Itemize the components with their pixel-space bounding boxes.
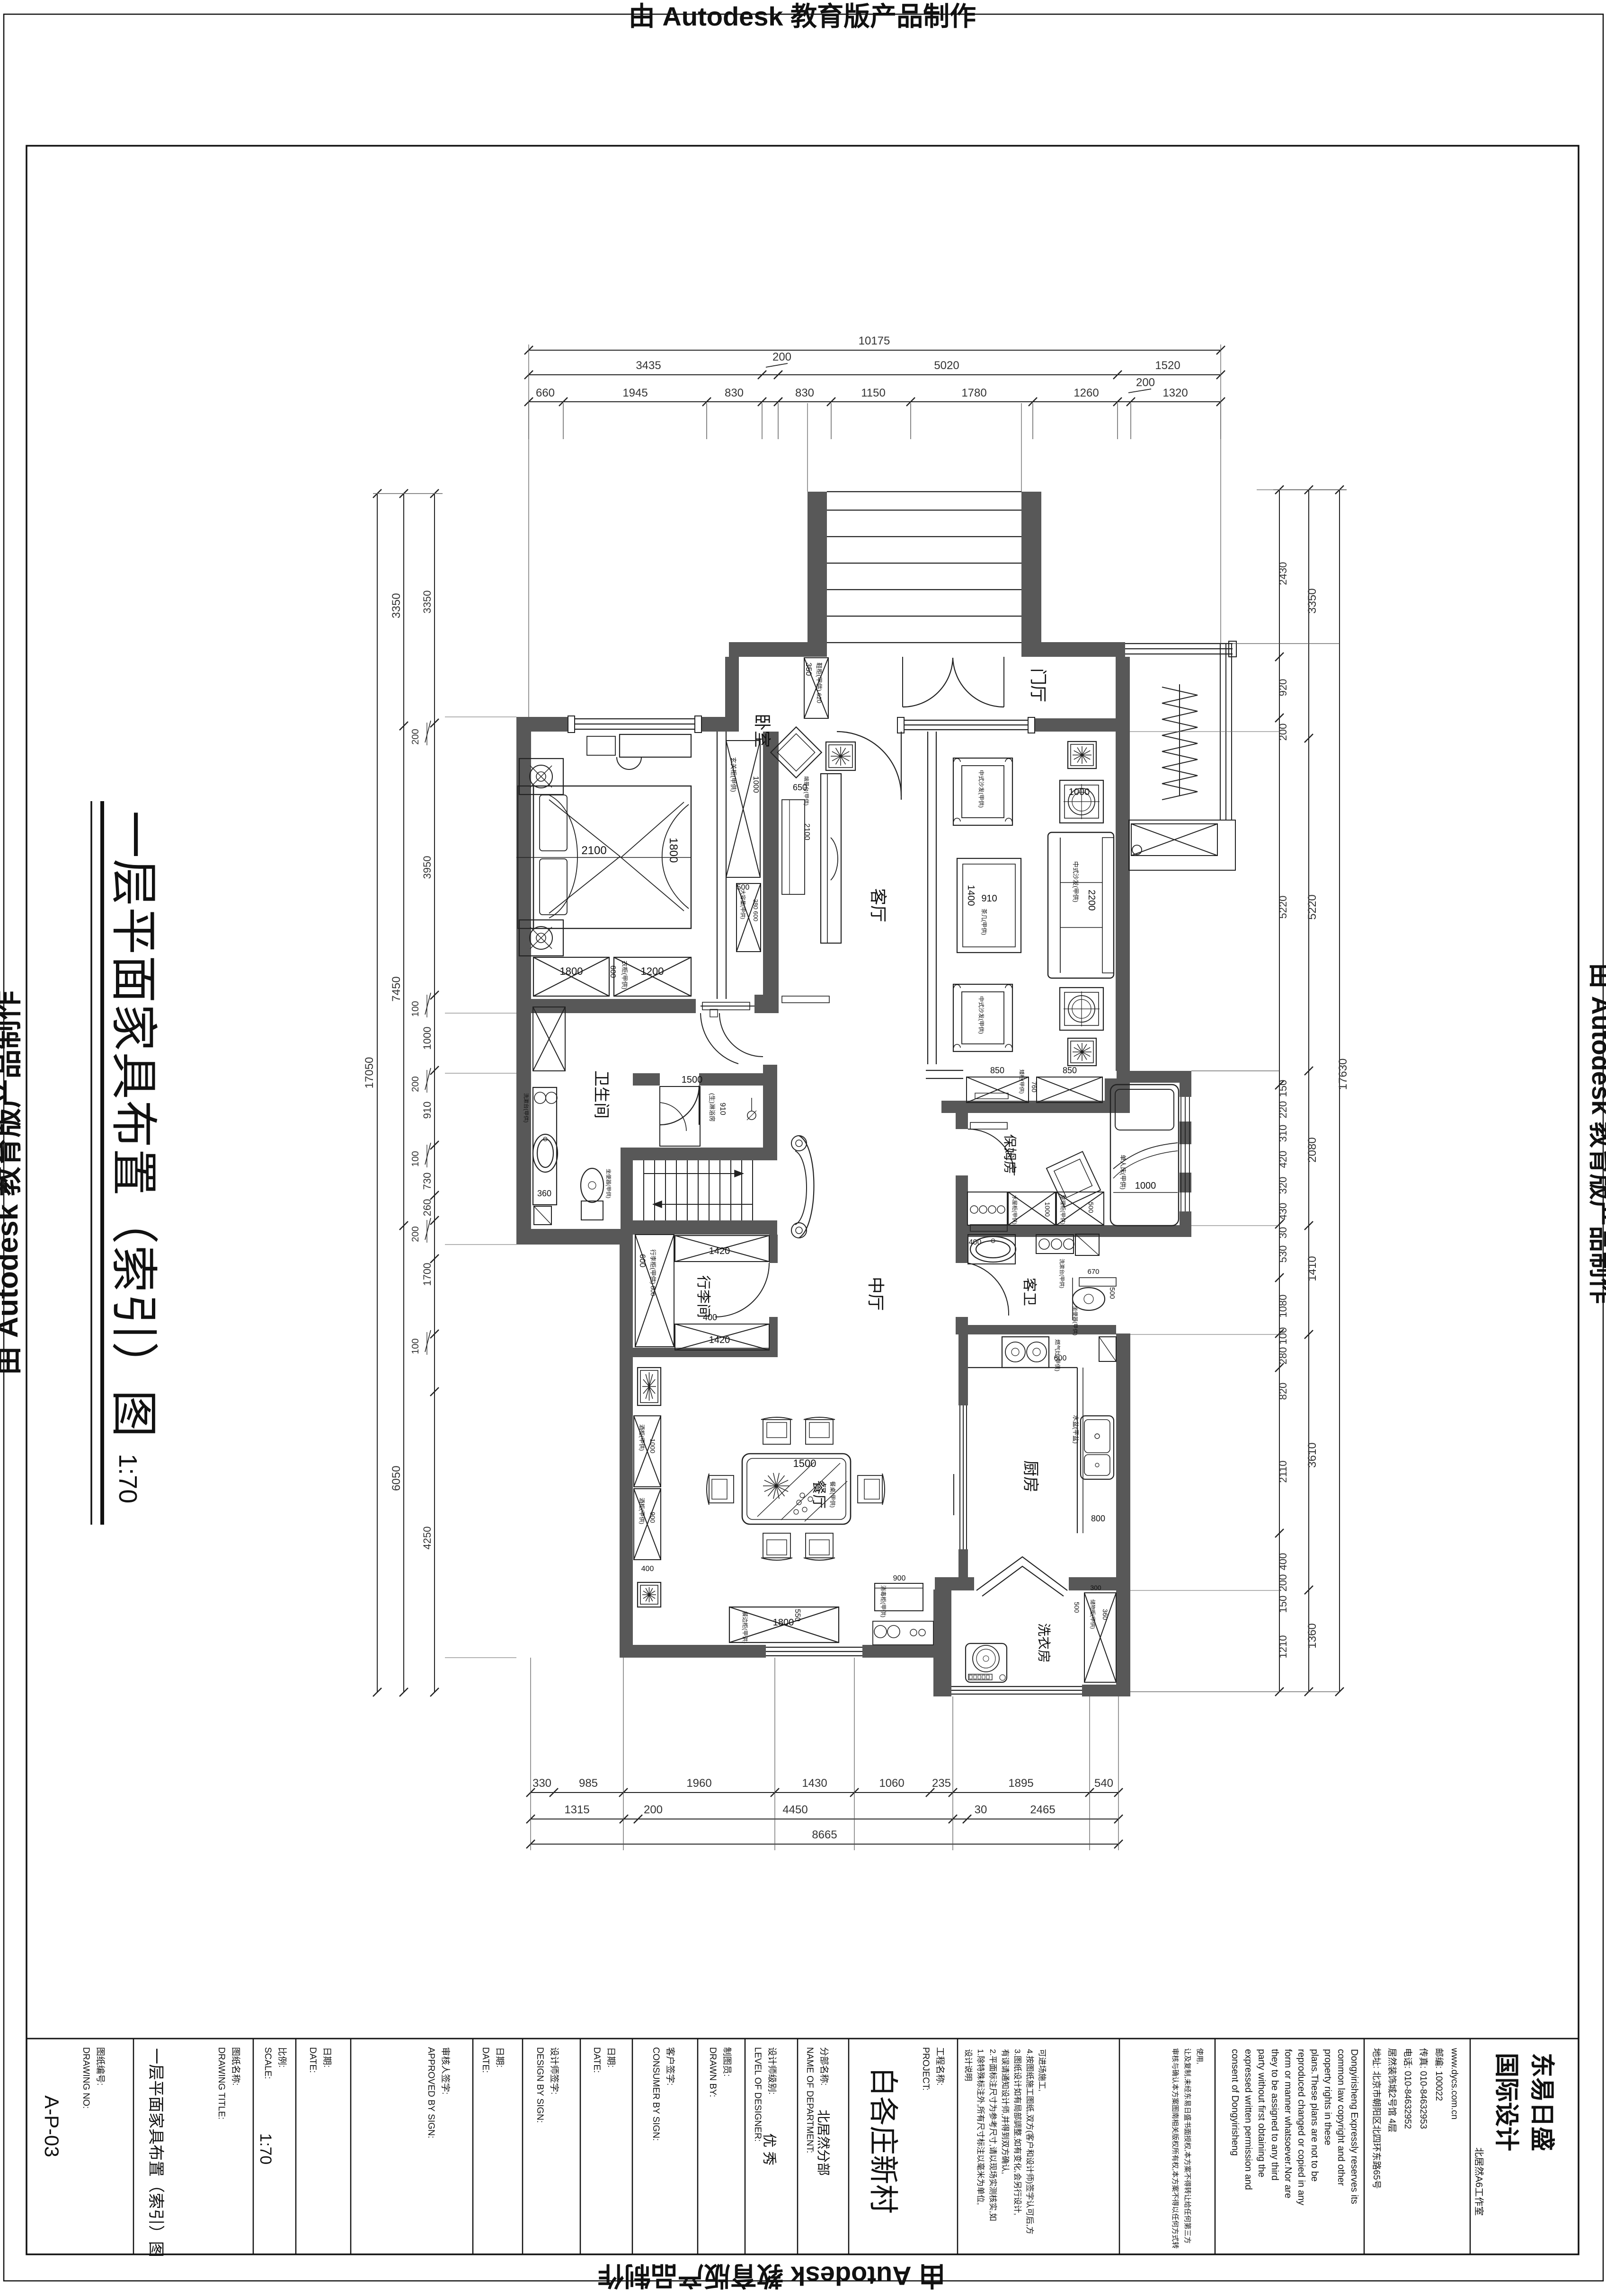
svg-text:380 600: 380 600	[752, 899, 759, 921]
svg-text:行李间: 行李间	[695, 1275, 711, 1318]
svg-text:1895: 1895	[1008, 1777, 1033, 1790]
svg-text:660: 660	[536, 387, 555, 399]
svg-text:DESIGN BY SIGN:: DESIGN BY SIGN:	[535, 2047, 545, 2123]
svg-text:鞋柜(甲供) 620: 鞋柜(甲供) 620	[816, 662, 823, 703]
svg-text:900: 900	[649, 1512, 657, 1523]
svg-text:设计师签字:: 设计师签字:	[549, 2047, 559, 2094]
svg-text:100: 100	[410, 1151, 421, 1166]
svg-text:厨房: 厨房	[1021, 1460, 1039, 1492]
svg-text:420: 420	[1277, 1151, 1289, 1168]
svg-text:比例:: 比例:	[277, 2047, 287, 2067]
svg-text:1800: 1800	[560, 965, 583, 977]
svg-text:消毒柜(甲供): 消毒柜(甲供)	[880, 1585, 887, 1617]
svg-text:400: 400	[1277, 1553, 1289, 1571]
svg-text:900: 900	[893, 1574, 906, 1582]
svg-text:common law copyright and other: common law copyright and other	[1336, 2049, 1346, 2186]
svg-text:LEVEL OF DESIGNER:: LEVEL OF DESIGNER:	[753, 2047, 763, 2142]
svg-text:客厅: 客厅	[869, 888, 888, 922]
svg-text:2080: 2080	[1306, 1137, 1319, 1162]
svg-text:白各庄新村: 白各庄新村	[867, 2067, 899, 2214]
svg-text:4250: 4250	[421, 1527, 433, 1550]
svg-text:430: 430	[1277, 1203, 1289, 1220]
svg-text:衣柜(甲供): 衣柜(甲供)	[621, 961, 628, 989]
svg-text:日期:: 日期:	[322, 2047, 332, 2067]
svg-text:东易日盛: 东易日盛	[1528, 2053, 1555, 2151]
svg-text:850: 850	[990, 1066, 1004, 1075]
svg-text:400: 400	[641, 1565, 654, 1573]
svg-text:玄关柜(甲供): 玄关柜(甲供)	[730, 757, 737, 792]
svg-text:矮柜(甲供): 矮柜(甲供)	[1019, 1069, 1025, 1094]
svg-text:2110: 2110	[1277, 1460, 1289, 1483]
svg-text:1320: 1320	[1162, 387, 1188, 399]
svg-text:1000: 1000	[1135, 1181, 1156, 1191]
svg-text:5220: 5220	[1306, 894, 1319, 919]
svg-text:行李柜(甲供) 800: 行李柜(甲供) 800	[649, 1249, 657, 1296]
svg-text:水屋柜(甲供): 水屋柜(甲供)	[1012, 1195, 1018, 1224]
svg-text:客卫: 客卫	[1021, 1278, 1037, 1306]
svg-text:800: 800	[1091, 1514, 1105, 1523]
svg-text:国际设计: 国际设计	[1492, 2053, 1520, 2151]
svg-text:670: 670	[1087, 1268, 1099, 1276]
svg-text:1400: 1400	[966, 885, 976, 906]
svg-text:5020: 5020	[934, 359, 959, 372]
svg-text:3350: 3350	[390, 593, 403, 618]
svg-text:邮编: 100022: 邮编: 100022	[1434, 2048, 1444, 2101]
svg-text:制图员:: 制图员:	[722, 2047, 732, 2076]
svg-text:1800: 1800	[773, 1617, 794, 1628]
svg-text:200: 200	[772, 351, 791, 363]
svg-text:200: 200	[1136, 376, 1155, 389]
svg-text:餐厅: 餐厅	[811, 1480, 826, 1509]
svg-text:PROJECT:: PROJECT:	[921, 2047, 931, 2091]
svg-text:1945: 1945	[622, 387, 648, 399]
svg-text:1000: 1000	[1044, 1202, 1051, 1217]
svg-text:200: 200	[410, 729, 421, 744]
svg-text:保姆房: 保姆房	[1003, 1134, 1017, 1174]
svg-text:760: 760	[1030, 1081, 1038, 1093]
svg-text:1000: 1000	[421, 1027, 433, 1050]
svg-text:17050: 17050	[363, 1057, 376, 1089]
svg-text:卧室: 卧室	[753, 714, 772, 748]
svg-text:310: 310	[1277, 1125, 1289, 1142]
svg-text:一层平面家具布置（索引）图: 一层平面家具布置（索引）图	[107, 811, 160, 1438]
svg-text:530: 530	[1277, 1245, 1289, 1263]
svg-text:DRAWING NO:: DRAWING NO:	[81, 2047, 91, 2109]
svg-text:有误请通知设计师,并得到双方确认,: 有误请通知设计师,并得到双方确认,	[1001, 2049, 1010, 2174]
svg-text:3350: 3350	[421, 591, 433, 614]
svg-text:由 Autodesk 教育版产品制作: 由 Autodesk 教育版产品制作	[1587, 963, 1606, 1304]
svg-text:17630: 17630	[1337, 1059, 1349, 1090]
svg-text:图纸编号:: 图纸编号:	[95, 2047, 106, 2085]
svg-text:酒柜(甲供): 酒柜(甲供)	[639, 1424, 645, 1451]
svg-text:280: 280	[1277, 1347, 1289, 1365]
svg-text:客户签字:: 客户签字:	[665, 2047, 675, 2085]
svg-text:APPROVED BY SIGN:: APPROVED BY SIGN:	[426, 2047, 436, 2138]
svg-text:DATE:: DATE:	[480, 2047, 490, 2073]
svg-text:日期:: 日期:	[606, 2047, 616, 2067]
svg-text:property rights in these: property rights in these	[1322, 2049, 1333, 2145]
svg-text:www.dycs.com.cn: www.dycs.com.cn	[1449, 2048, 1459, 2119]
svg-text:360: 360	[1101, 1609, 1109, 1620]
svg-text:1:70: 1:70	[114, 1454, 142, 1503]
svg-text:1800: 1800	[667, 838, 680, 863]
svg-text:大容量(甲供): 大容量(甲供)	[740, 890, 746, 919]
svg-text:餐边柜(甲供): 餐边柜(甲供)	[742, 1611, 749, 1643]
svg-text:1410: 1410	[1306, 1256, 1319, 1281]
svg-text:5220: 5220	[1277, 896, 1289, 919]
svg-text:1520: 1520	[1155, 359, 1180, 372]
svg-text:优 秀: 优 秀	[761, 2133, 777, 2165]
svg-text:一层平面家具布置（索引）图: 一层平面家具布置（索引）图	[147, 2048, 165, 2257]
svg-text:600: 600	[1054, 1354, 1067, 1362]
svg-text:审核人签字:: 审核人签字:	[440, 2047, 451, 2094]
svg-text:30: 30	[975, 1803, 987, 1816]
svg-text:储物柜(甲供): 储物柜(甲供)	[1090, 1599, 1096, 1629]
svg-text:1.除特殊标注外,所有尺寸标注以毫米为单位,: 1.除特殊标注外,所有尺寸标注以毫米为单位,	[976, 2049, 985, 2205]
svg-text:中式沙发(甲供): 中式沙发(甲供)	[978, 996, 985, 1034]
svg-text:工程名称:: 工程名称:	[935, 2047, 945, 2085]
svg-text:可进场施工,: 可进场施工,	[1038, 2049, 1047, 2092]
svg-text:3610: 3610	[1306, 1442, 1319, 1467]
svg-text:300: 300	[1090, 1584, 1101, 1591]
svg-text:中式沙发(甲供): 中式沙发(甲供)	[1072, 861, 1079, 902]
svg-text:200: 200	[410, 1076, 421, 1092]
svg-text:4.按图纸施工图纸,双方(客户和设计师)签字认可后,方: 4.按图纸施工图纸,双方(客户和设计师)签字认可后,方	[1025, 2049, 1034, 2234]
svg-text:500: 500	[1073, 1602, 1081, 1613]
svg-text:150: 150	[1277, 1596, 1289, 1613]
svg-text:整理柜(甲供): 整理柜(甲供)	[1060, 1195, 1066, 1224]
svg-text:设计师级别:: 设计师级别:	[767, 2047, 777, 2094]
svg-text:SCALE:: SCALE:	[263, 2047, 273, 2079]
svg-text:820: 820	[1277, 1383, 1289, 1400]
svg-text:985: 985	[579, 1777, 598, 1790]
svg-text:3350: 3350	[1306, 588, 1319, 613]
svg-text:图纸名称:: 图纸名称:	[231, 2047, 241, 2085]
svg-text:350: 350	[804, 662, 813, 676]
svg-text:2100: 2100	[581, 844, 606, 857]
svg-text:地址: 北京市朝阳区北四环东路65号: 地址: 北京市朝阳区北四环东路65号	[1371, 2048, 1382, 2189]
svg-text:中式沙发(甲供): 中式沙发(甲供)	[978, 770, 985, 808]
svg-text:由 Autodesk 教育版产品制作: 由 Autodesk 教育版产品制作	[598, 2261, 945, 2291]
svg-text:NAME OF DEPARTMENT:: NAME OF DEPARTMENT:	[805, 2047, 815, 2153]
svg-text:200: 200	[1277, 1574, 1289, 1592]
svg-text:传真: 010-84632953: 传真: 010-84632953	[1418, 2048, 1429, 2129]
svg-text:500: 500	[1108, 1287, 1116, 1299]
svg-text:100: 100	[410, 1338, 421, 1354]
svg-text:2200: 2200	[1086, 890, 1097, 911]
svg-text:1260: 1260	[1074, 387, 1099, 399]
svg-text:单人床(甲供): 单人床(甲供)	[1119, 1155, 1127, 1190]
svg-text:30: 30	[1277, 1227, 1289, 1238]
svg-text:910: 910	[719, 1103, 727, 1115]
svg-text:1360: 1360	[1306, 1623, 1319, 1648]
svg-text:1200: 1200	[641, 965, 664, 977]
svg-text:expressed written permission a: expressed written permission and	[1243, 2049, 1253, 2190]
svg-text:920: 920	[1277, 679, 1289, 697]
svg-text:让及复制,未经东易日盛书面授权,本方案不得转让给任何第三方: 让及复制,未经东易日盛书面授权,本方案不得转让给任何第三方	[1183, 2048, 1192, 2243]
svg-text:1500: 1500	[793, 1457, 816, 1469]
svg-text:洗漱台(甲供): 洗漱台(甲供)	[523, 1093, 530, 1122]
svg-text:1150: 1150	[861, 387, 886, 399]
svg-text:220: 220	[1277, 1101, 1289, 1119]
svg-text:卫生间: 卫生间	[592, 1070, 610, 1119]
svg-text:850: 850	[1063, 1066, 1077, 1075]
svg-text:日期:: 日期:	[495, 2047, 505, 2067]
svg-text:门厅: 门厅	[1029, 668, 1048, 702]
svg-text:1960: 1960	[686, 1777, 711, 1790]
svg-text:北居然分部: 北居然分部	[816, 2110, 831, 2176]
svg-text:1430: 1430	[802, 1777, 827, 1790]
svg-text:1080: 1080	[1277, 1295, 1289, 1318]
svg-text:洗衣房: 洗衣房	[1037, 1623, 1051, 1663]
svg-text:6050: 6050	[390, 1466, 403, 1491]
svg-text:260: 260	[421, 1199, 433, 1217]
svg-text:2465: 2465	[1030, 1803, 1055, 1816]
svg-text:1060: 1060	[879, 1777, 904, 1790]
svg-text:form or manner whatsoever.Nor: form or manner whatsoever.Nor are	[1283, 2049, 1293, 2199]
svg-text:830: 830	[725, 387, 744, 399]
svg-text:plans.These plans are not to b: plans.These plans are not to be	[1309, 2049, 1320, 2181]
svg-text:600: 600	[609, 965, 617, 978]
svg-text:(生)淋浴房: (生)淋浴房	[709, 1093, 716, 1122]
svg-text:审核与确认本方案图南相关版权所有权,本方案不得以任何方式转: 审核与确认本方案图南相关版权所有权,本方案不得以任何方式转	[1171, 2048, 1180, 2249]
svg-text:DRAWING TITLE:: DRAWING TITLE:	[216, 2047, 226, 2119]
svg-text:10175: 10175	[859, 335, 890, 347]
svg-text:DATE:: DATE:	[308, 2047, 318, 2073]
svg-text:洗漱台(甲供): 洗漱台(甲供)	[1059, 1259, 1065, 1288]
svg-text:餐桌(甲供): 餐桌(甲供)	[829, 1481, 836, 1508]
svg-text:2.平面标注尺寸为参考尺寸,请以现场实测核实,如: 2.平面标注尺寸为参考尺寸,请以现场实测核实,如	[988, 2049, 997, 2221]
svg-text:reproduced changed or copied i: reproduced changed or copied in any	[1296, 2049, 1306, 2205]
svg-text:2100: 2100	[803, 823, 811, 840]
svg-text:居然装饰城2号馆 4层: 居然装饰城2号馆 4层	[1387, 2048, 1397, 2132]
svg-text:使用,: 使用,	[1196, 2048, 1204, 2064]
svg-text:party without first obtaining: party without first obtaining the	[1256, 2049, 1267, 2177]
svg-text:水盆(平盆): 水盆(平盆)	[1072, 1415, 1079, 1444]
svg-text:8665: 8665	[812, 1828, 837, 1841]
svg-text:consent of Dongyirisheng: consent of Dongyirisheng	[1230, 2049, 1240, 2156]
svg-text:910: 910	[421, 1102, 433, 1119]
svg-text:200: 200	[644, 1803, 663, 1816]
svg-text:1420: 1420	[709, 1335, 730, 1345]
svg-text:设计说明: 设计说明	[964, 2049, 973, 2081]
svg-text:由 Autodesk 教育版产品制作: 由 Autodesk 教育版产品制作	[629, 1, 976, 31]
svg-text:DRAWN BY:: DRAWN BY:	[708, 2047, 718, 2097]
svg-text:4450: 4450	[782, 1803, 807, 1816]
svg-text:DATE:: DATE:	[592, 2047, 602, 2073]
svg-text:1:70: 1:70	[257, 2133, 275, 2164]
svg-text:7450: 7450	[390, 976, 403, 1001]
svg-text:A-P-03: A-P-03	[41, 2095, 63, 2157]
svg-text:1210: 1210	[1277, 1635, 1289, 1659]
svg-text:坐便器(甲供): 坐便器(甲供)	[605, 1169, 612, 1198]
svg-text:400: 400	[969, 1238, 982, 1246]
svg-text:Dongyirisheng Expressly reserv: Dongyirisheng Expressly reserves its	[1349, 2049, 1359, 2204]
svg-text:2430: 2430	[1277, 562, 1289, 585]
svg-text:酒柜(甲供): 酒柜(甲供)	[639, 1498, 645, 1524]
svg-text:360: 360	[537, 1189, 551, 1198]
svg-text:600: 600	[638, 1254, 647, 1267]
svg-text:1700: 1700	[421, 1263, 433, 1286]
svg-text:they to be assigned to any thi: they to be assigned to any third	[1269, 2049, 1280, 2181]
svg-text:330: 330	[532, 1777, 551, 1790]
svg-text:3950: 3950	[421, 856, 433, 879]
svg-text:茶几(甲供): 茶几(甲供)	[981, 909, 988, 935]
svg-text:分部名称:: 分部名称:	[819, 2047, 829, 2085]
svg-text:540: 540	[1094, 1777, 1113, 1790]
svg-text:端景台(甲供): 端景台(甲供)	[803, 776, 810, 805]
svg-text:1420: 1420	[709, 1246, 730, 1256]
svg-text:320: 320	[1277, 1177, 1289, 1194]
svg-text:1780: 1780	[961, 387, 986, 399]
svg-text:910: 910	[981, 893, 997, 904]
svg-text:电话: 010-84632952: 电话: 010-84632952	[1402, 2048, 1413, 2129]
svg-text:3435: 3435	[636, 359, 661, 372]
svg-text:北居然A6工作室: 北居然A6工作室	[1473, 2147, 1484, 2216]
svg-text:550: 550	[793, 1609, 801, 1622]
svg-text:3.图纸设计如有局部調整,如有变化,会另行设计,: 3.图纸设计如有局部調整,如有变化,会另行设计,	[1013, 2049, 1022, 2215]
svg-text:1000: 1000	[752, 776, 760, 793]
svg-text:由 Autodesk 教育版产品制作: 由 Autodesk 教育版产品制作	[0, 991, 24, 1376]
svg-text:1000: 1000	[649, 1439, 657, 1453]
svg-text:坐便器(甲供): 坐便器(甲供)	[1072, 1306, 1079, 1335]
svg-text:500: 500	[1087, 1202, 1095, 1213]
svg-text:1315: 1315	[564, 1803, 589, 1816]
svg-text:730: 730	[421, 1173, 433, 1190]
svg-text:1500: 1500	[682, 1075, 703, 1085]
svg-text:中厅: 中厅	[866, 1277, 886, 1311]
svg-text:CONSUMER BY SIGN:: CONSUMER BY SIGN:	[651, 2047, 661, 2141]
svg-text:200: 200	[410, 1226, 421, 1242]
svg-text:100: 100	[410, 1001, 421, 1016]
svg-text:830: 830	[795, 387, 814, 399]
svg-text:200: 200	[1277, 724, 1289, 741]
svg-text:235: 235	[932, 1777, 951, 1790]
